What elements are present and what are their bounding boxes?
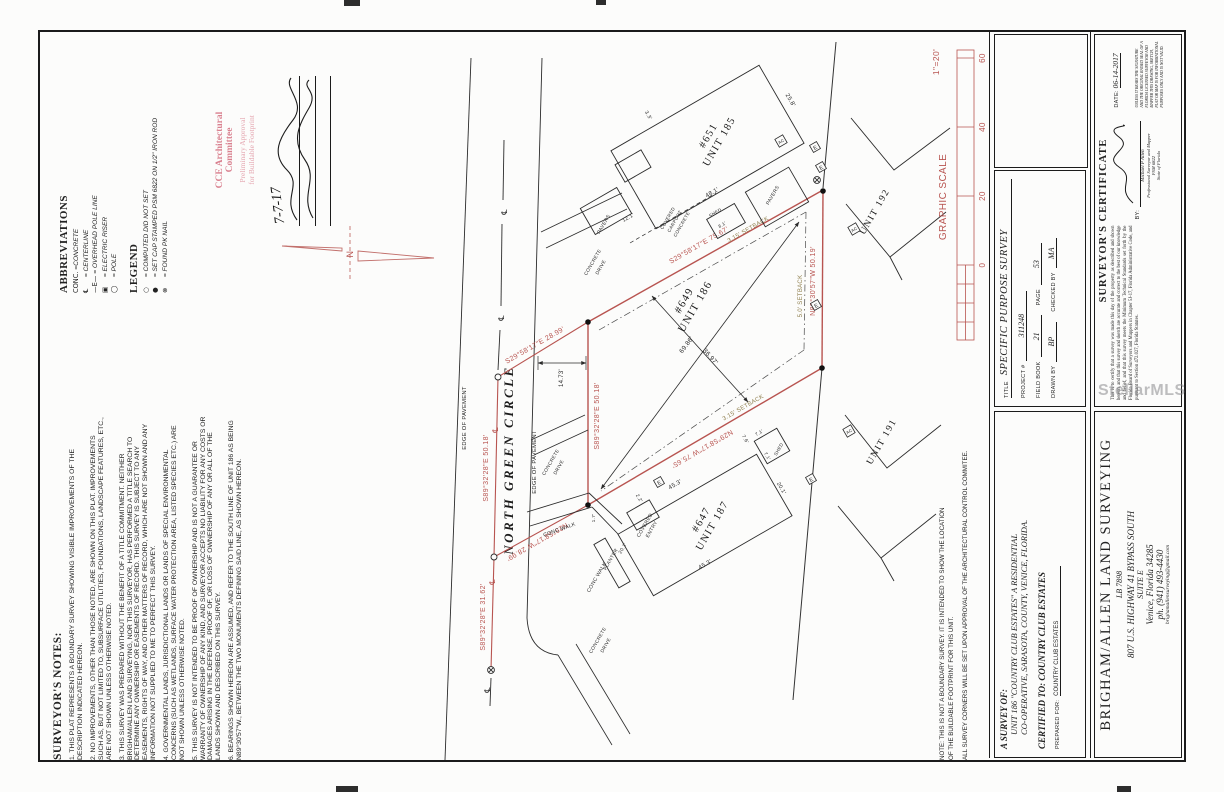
abbrev-symbol: CONC. [72,272,82,293]
dim-street-offset: 14.73' [559,369,565,387]
company-lb: LB 7898 [1115,418,1124,751]
surveyors-notes-title: SURVEYOR'S NOTES: [52,415,65,760]
field-book-value: 21 [1032,315,1042,357]
note-paragraph: 4. GOVERNMENTAL LANDS, JURISDICTIONAL LA… [163,415,187,760]
surveyors-notes-block: SURVEYOR'S NOTES: 1. THIS PLAT REPRESENT… [52,415,337,760]
dim-diag-short: 36.97' [701,348,719,367]
centerline-symbol-icon: ℄ [82,279,92,293]
survey-of-line: CO-OPERATIVE, SARASOTA, COUNTY, VENICE, … [1019,420,1029,735]
company-phone: ph. (941) 493-4430 [1155,418,1165,751]
title-label: TITLE [1004,381,1010,398]
note-paragraph: 2. NO IMPROVEMENTS, OTHER THAN THOSE NOT… [90,415,114,760]
project-label: PROJECT # [1021,365,1027,398]
pk-nail-icon [814,177,821,184]
street-north-green-circle: EDGE OF PAVEMENT EDGE OF PAVEMENT NORTH … [445,58,558,760]
note-line: ALL SURVEY CORNERS WILL BE SET UPON APPR… [961,415,970,760]
company-email: brighamallensurveying@gmail.com [1165,418,1171,751]
survey-of-box: A SURVEY OF: UNIT 186 "COUNTRY CLUB ESTA… [994,411,1086,758]
centerline-symbol: ℄ [491,427,500,433]
dim-7-1: 7.1' [763,451,772,461]
page-value: 53 [1032,243,1042,285]
pole-icon: ◯ [110,279,120,293]
stamp-line: Preliminary Approval [238,60,247,240]
scale-tick: 60 [978,53,987,63]
conc-walk-label: CONC WALK [543,521,577,538]
found-pk-nail-icon: ⊗ [161,279,171,293]
note-line: NOTE: THIS IS NOT A BOUNDARY SURVEY. IT … [938,415,947,760]
graphic-scale: 60 40 20 0 1"=20' GRAPHIC SCALE [931,49,987,340]
abbreviation-item: CONC. =CONCRETE [72,38,82,293]
ac-unit-icon: AC [848,223,860,235]
street-name: NORTH GREEN CIRCLE [501,365,516,555]
edge-of-pavement-label: EDGE OF PAVEMENT [532,430,538,494]
stamp-line: CCE Architectural [215,60,225,240]
conc-walk-label: CONC WALK [586,561,608,594]
note-line: OF THE BUILDABLE FOOTPRINT FOR THIS UNIT… [947,415,956,760]
pk-nail-icon [488,667,495,674]
abbreviations-legend-block: ABBREVIATIONS CONC. =CONCRETE ℄ = CENTER… [58,38,198,293]
scale-ratio: 1"=20' [931,49,941,75]
stamp-line: Committee [225,60,235,240]
dim-7-1: 7.1' [754,428,764,437]
survey-of-heading: A SURVEY OF: [999,420,1009,749]
dim-3-3: 3.3' [643,110,653,121]
computed-point-icon: ○ [142,279,152,293]
setback-label: 3.15' SETBACK [722,394,765,422]
certificate-disclaimer: UNLESS IT BEARS THE SIGNATURE AND THE OR… [1135,41,1165,108]
legend-title: LEGEND [128,38,140,293]
dim-48-1: 48.1' [705,187,720,199]
title-block-divider [1090,32,1091,758]
handwritten-signatures [277,65,335,230]
legend-item: ○ = COMPUTED DID NOT SET [142,38,152,293]
building-unit-187 [527,428,792,596]
legend-item: ⊗ = FOUND PK NAIL [161,38,171,293]
dim-45-3: 45.3' [698,559,713,571]
bearing-cd: N29°58'17"W 75.65' [670,428,734,470]
dim-45-3: 45.3' [668,479,683,491]
prepared-for-value: COUNTRY CLUB ESTATES [1054,566,1061,696]
stamp-line: for Buildable Footprint [247,60,256,240]
ac-unit-icon: AC [843,425,855,437]
empty-title-box [994,34,1088,168]
title-block-divider [989,32,990,758]
centerline-symbol: ℄ [497,315,506,321]
survey-sheet: N EDGE OF PAVEMENT EDGE OF PAVEMENT NORT… [0,0,1224,792]
dim-25-8: 25.8' [784,93,796,108]
project-info-box: TITLE SPECIFIC PURPOSE SURVEY PROJECT # … [994,170,1086,407]
unit-191-name: UNIT 191 [865,417,899,466]
survey-monuments [488,177,826,674]
date-label: DATE: [1114,90,1120,108]
scale-tick: 20 [978,191,987,201]
centerline-symbol: ℄ [483,687,492,693]
scale-tick: 0 [978,262,987,267]
setback-label: 5.0' SETBACK [798,275,804,318]
setback-label: 3.15' SETBACK [727,216,770,244]
drawn-by-label: DRAWN BY [1051,366,1057,398]
prepared-for-label: PREPARED FOR: [1055,700,1061,749]
electric-riser-icon: ▣ [101,279,111,293]
company-address3: Venice, Florida 34285 [1145,418,1155,751]
certificate-date: 06-14-2017 [1111,53,1121,88]
note-paragraph: 3. THIS SURVEY WAS PREPARED WITHOUT THE … [119,415,158,760]
set-cap-icon: ● [151,279,161,293]
shed-label: SHED [708,207,723,219]
note-paragraph: 5. THIS SURVEY IS NOT INTENDED TO BE PRO… [192,415,224,760]
north-arrow-label: N [345,251,355,258]
edge-of-pavement-label: EDGE OF PAVEMENT [462,386,468,450]
dim-20-1: 20.1' [618,542,629,555]
cce-approval-stamp: CCE Architectural Committee Preliminary … [215,60,337,240]
centerline-symbol: ℄ [500,209,509,215]
boundary-note-block: NOTE: THIS IS NOT A BOUNDARY SURVEY. IT … [938,415,988,760]
note-paragraph: 6. BEARINGS SHOWN HEREON ARE ASSUMED, AN… [228,415,244,760]
bearing-west-edge: S89°32'28"E 50.18' [593,382,601,449]
building-unit-185 [580,65,808,243]
street-offset-dimension: 14.73' [538,356,586,387]
abbreviation-item: ▣ = ELECTRIC RISER [101,38,111,293]
abbreviations-title: ABBREVIATIONS [58,38,70,293]
dim-diag-long: 69.86' [678,335,695,354]
company-name: BRIGHAM/ALLEN LAND SURVEYING [1098,418,1115,751]
survey-title: SPECIFIC PURPOSE SURVEY [999,229,1010,375]
certificate-body: This is to certify that a survey was mad… [1111,226,1165,401]
company-address1: 807 U.S. HIGHWAY 41 BYPASS SOUTH [1126,418,1136,751]
building-unit-192 [846,118,950,280]
checked-by-label: CHECKED BY [1051,272,1057,311]
pavers-label: PAVERS [765,184,781,206]
scale-title: GRAPHIC SCALE [938,154,949,240]
field-book-label: FIELD BOOK [1036,361,1042,398]
certified-to: CERTIFIED TO: COUNTRY CLUB ESTATES [1037,420,1047,749]
surveyor-signature [1113,122,1139,208]
building-unit-191 [838,415,941,581]
dim-1-7: 1.7' [591,514,597,523]
unit-192-name: UNIT 192 [858,187,892,236]
surveyor-state: State of Florida [1156,112,1161,220]
bearing-centerline-31: S89°32'28"E 31.62' [479,583,487,650]
centerline-symbol: ℄ [488,579,497,585]
checked-by-value: MA [1047,238,1057,268]
dim-12-1: 12.1' [622,212,636,223]
company-address2: SUITE E [1136,418,1145,751]
page-label: PAGE [1036,289,1042,305]
watermark: StellarMLS [1098,382,1186,400]
by-label: BY: [1135,210,1141,220]
project-number: 311248 [1017,291,1027,361]
overhead-pole-line [793,42,836,700]
scale-tick: 40 [978,122,987,132]
drawn-by-value: BP [1047,322,1057,362]
overhead-pole-line-icon: —E— [91,276,101,293]
ac-unit-icon: AC [775,135,787,147]
legend-item: ● = SET CAP STAMPED PSM 6822 ON 1/2" IRO… [151,38,161,293]
abbreviation-item: ◯ = POLE [110,38,120,293]
abbreviation-item: ℄ = CENTERLINE [82,38,92,293]
company-box: BRIGHAM/ALLEN LAND SURVEYING LB 7898 807… [1094,411,1182,758]
note-paragraph: 1. THIS PLAT REPRESENTS A BOUNDARY SURVE… [69,415,85,760]
pavers-label: PAVERS [596,213,612,235]
bearing-centerline-50: S89°32'28"E 50.18' [482,434,490,501]
survey-of-line: UNIT 186 "COUNTRY CLUB ESTATES" A RESIDE… [1009,420,1019,735]
abbreviation-item: —E— = OVERHEAD POLE LINE [91,38,101,293]
surveyors-certificate-box: SURVEYOR'S CERTIFICATE This is to certif… [1094,34,1182,407]
dim-2-2: 2.2' [634,493,644,504]
dim-7-6: 7.6' [740,434,750,445]
certificate-heading: SURVEYOR'S CERTIFICATE [1098,41,1109,400]
